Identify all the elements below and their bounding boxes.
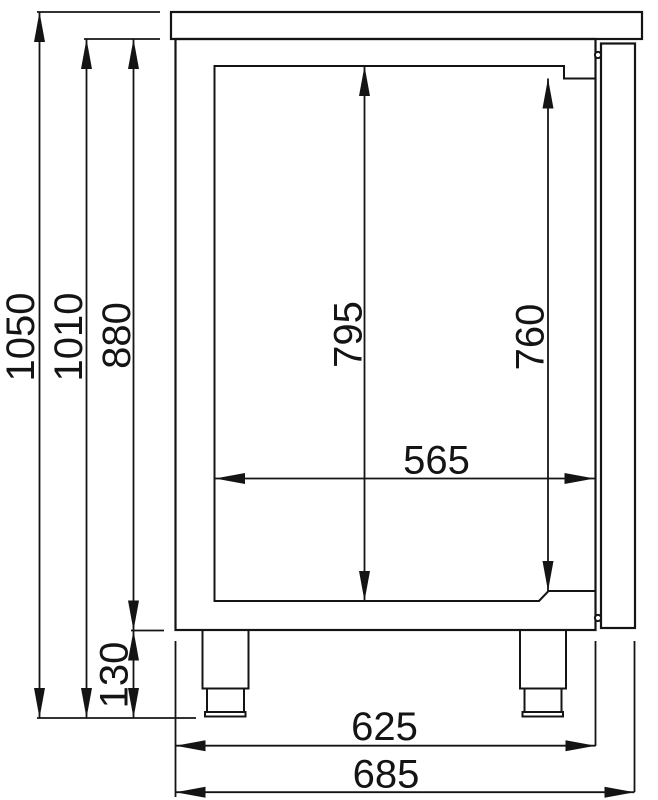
svg-text:565: 565 [403, 439, 470, 483]
svg-text:130: 130 [93, 642, 137, 709]
svg-text:880: 880 [95, 302, 139, 369]
svg-text:685: 685 [353, 753, 420, 797]
svg-text:1050: 1050 [0, 293, 43, 382]
svg-text:1010: 1010 [47, 293, 91, 382]
svg-text:625: 625 [351, 705, 418, 749]
svg-text:795: 795 [327, 301, 371, 368]
svg-text:760: 760 [509, 304, 553, 371]
